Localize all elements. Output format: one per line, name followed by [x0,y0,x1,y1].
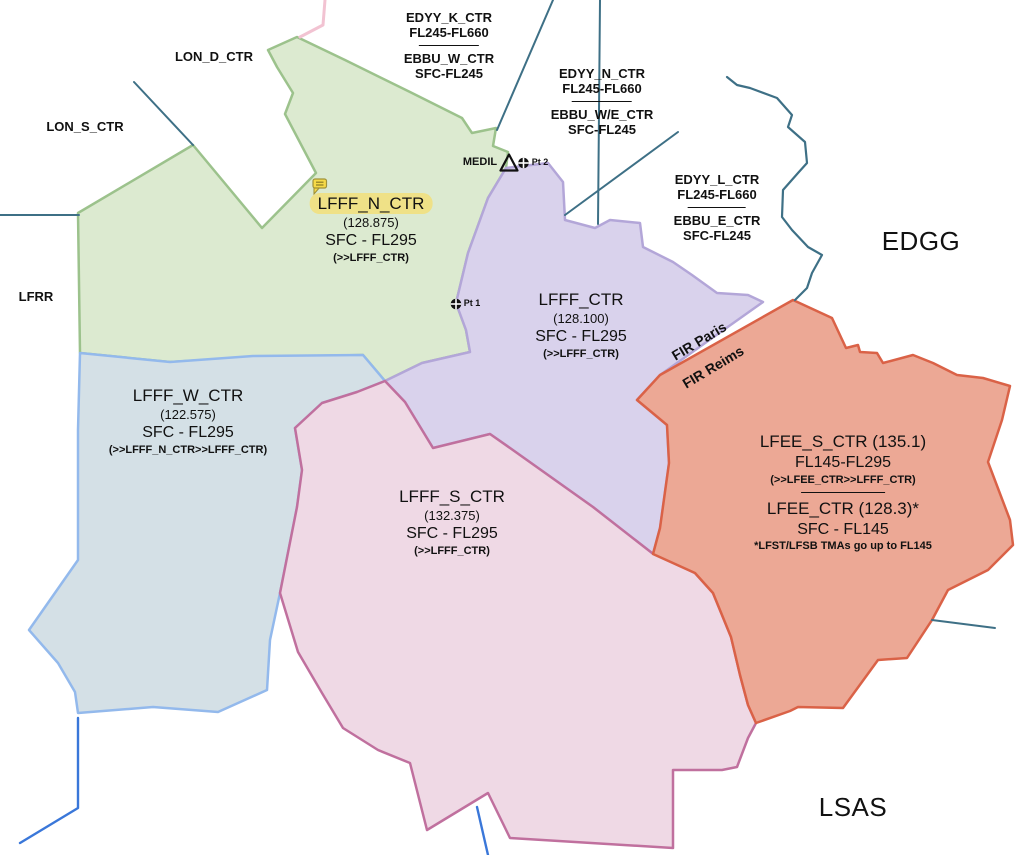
lfff-s-label-line-3: (>>LFFF_CTR) [399,544,505,558]
river-south [477,807,488,855]
lfff-w-label: LFFF_W_CTR(122.575)SFC - FL295(>>LFFF_N_… [109,385,267,457]
lsas-label-line-0: LSAS [819,792,888,822]
pt1-label-line-0: Pt 1 [464,298,481,309]
lfff-w-label-line-3: (>>LFFF_N_CTR>>LFFF_CTR) [109,443,267,457]
lon-s-label: LON_S_CTR [46,119,123,134]
edyy-l-label-line-4: SFC-FL245 [674,228,761,243]
lfee-label-line-6: *LFST/LFSB TMAs go up to FL145 [754,540,932,553]
lfff-label-line-0[interactable]: LFFF_CTR [535,289,627,311]
edyy-k-label-line-0: EDYY_K_CTR [404,10,494,25]
edgg-label-line-0: EDGG [882,226,961,256]
edyy-l-label-line-3: EBBU_E_CTR [674,213,761,228]
edgg-label: EDGG [882,226,961,256]
pt2-label: Pt 2 [532,157,549,168]
lfff-n-ctr-region[interactable] [78,37,508,381]
edyy-n-label-line-4: SFC-FL245 [551,122,654,137]
lfff-w-label-line-2: SFC - FL295 [109,423,267,443]
lfff-label-line-2: SFC - FL295 [535,327,627,347]
lfee-label-line-5: SFC - FL145 [754,520,932,540]
edyy-n-label-line-0: EDYY_N_CTR [551,66,654,81]
lfff-w-label-line-0[interactable]: LFFF_W_CTR [109,385,267,407]
lfff-n-label-line-2: SFC - FL295 [310,231,433,251]
lfee-label-divider [801,492,885,493]
lfff-label: LFFF_CTR(128.100)SFC - FL295(>>LFFF_CTR) [535,289,627,361]
edyy-k-label: EDYY_K_CTRFL245-FL660EBBU_W_CTRSFC-FL245 [404,10,494,81]
edyy-n-label: EDYY_N_CTRFL245-FL660EBBU_W/E_CTRSFC-FL2… [551,66,654,137]
medil-label: MEDIL [463,156,497,169]
pt2-label-line-0: Pt 2 [532,157,549,168]
lfrr-label: LFRR [19,289,54,304]
river-southwest [20,718,78,843]
edyy-k-label-line-4: SFC-FL245 [404,66,494,81]
boundary-east [932,620,995,628]
lfee-label-line-2: (>>LFEE_CTR>>LFFF_CTR) [754,473,932,487]
lfff-n-label-line-1: (128.875) [310,215,433,231]
lfee-label-line-0[interactable]: LFEE_S_CTR (135.1) [754,431,932,453]
lfff-label-line-1: (128.100) [535,311,627,327]
lfee-label-line-4[interactable]: LFEE_CTR (128.3)* [754,498,932,520]
lfff-n-label-line-3: (>>LFFF_CTR) [310,251,433,265]
boundary-center-diagonal [565,132,678,215]
lfee-label: LFEE_S_CTR (135.1)FL145-FL295(>>LFEE_CTR… [754,431,932,553]
medil-label-line-0: MEDIL [463,156,497,169]
edyy-l-label-divider [688,207,746,208]
flag-icon[interactable] [313,179,327,188]
lfff-w-label-line-1: (122.575) [109,407,267,423]
lsas-label: LSAS [819,792,888,822]
lfff-s-label-line-2: SFC - FL295 [399,524,505,544]
edyy-k-label-divider [419,45,479,46]
edyy-l-label-line-1: FL245-FL660 [674,187,761,202]
lfff-s-label: LFFF_S_CTR(132.375)SFC - FL295(>>LFFF_CT… [399,486,505,558]
pt1-label: Pt 1 [464,298,481,309]
lfff-s-label-line-0[interactable]: LFFF_S_CTR [399,486,505,508]
edyy-l-label-line-0: EDYY_L_CTR [674,172,761,187]
edyy-n-label-line-3: EBBU_W/E_CTR [551,107,654,122]
lon-d-label-line-0: LON_D_CTR [175,49,253,64]
lfff-n-label-highlight[interactable]: LFFF_N_CTR [310,193,433,214]
lon-s-label-line-0: LON_S_CTR [46,119,123,134]
lfff-n-label: LFFF_N_CTR(128.875)SFC - FL295(>>LFFF_CT… [310,193,433,265]
lon-d-label: LON_D_CTR [175,49,253,64]
lfee-label-line-1: FL145-FL295 [754,453,932,473]
edyy-n-label-divider [572,101,632,102]
edyy-l-label: EDYY_L_CTRFL245-FL660EBBU_E_CTRSFC-FL245 [674,172,761,243]
edyy-k-label-line-3: EBBU_W_CTR [404,51,494,66]
edyy-n-label-line-1: FL245-FL660 [551,81,654,96]
lfff-s-label-line-1: (132.375) [399,508,505,524]
lfrr-label-line-0: LFRR [19,289,54,304]
boundary-lon-diagonal [134,82,193,145]
sector-map: EDYY_K_CTRFL245-FL660EBBU_W_CTRSFC-FL245… [0,0,1017,855]
boundary-pink-top [300,0,325,37]
boundary-top-diagonal [497,0,553,130]
edyy-k-label-line-1: FL245-FL660 [404,25,494,40]
lfff-label-line-3: (>>LFFF_CTR) [535,347,627,361]
lfff-n-label-line-0[interactable]: LFFF_N_CTR [310,193,433,215]
